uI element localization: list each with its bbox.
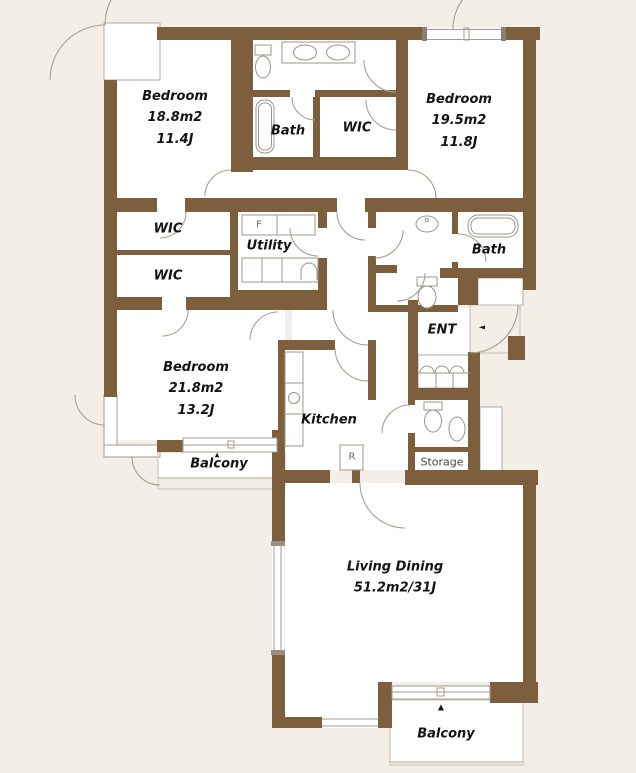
bedroom3-balcony-slider	[183, 438, 277, 452]
toilet2-icon	[417, 277, 437, 308]
bath2-label: Bath	[472, 239, 506, 260]
living-balcony-slider	[392, 686, 490, 699]
corridor2-floor	[292, 310, 410, 345]
balcony1-arrow-icon: ▲	[215, 452, 220, 459]
ent-label: ENT	[428, 319, 457, 340]
double-sink-vanity	[282, 42, 355, 63]
bedroom1-label: Bedroom 18.8m2 11.4J	[142, 86, 208, 150]
corner-window-vertical	[104, 395, 117, 452]
powder-sink-icon	[416, 216, 438, 232]
toilet3-icon	[424, 402, 442, 432]
bedroom2-label: Bedroom 19.5m2 11.8J	[426, 89, 492, 153]
floor-plan-drawing	[0, 0, 636, 773]
bedroom2-window-arc	[453, 0, 503, 29]
bedroom3-exterior-door-arc	[75, 395, 105, 425]
balcony2-label: Balcony	[417, 723, 475, 744]
wic-top-label: WIC	[343, 117, 372, 138]
wic2-label: WIC	[154, 265, 183, 286]
small-sink-icon	[449, 417, 465, 441]
kitchen-counter	[285, 352, 303, 446]
entry-alcove-floor	[104, 23, 160, 80]
wic1-label: WIC	[154, 218, 183, 239]
utility-label: Utility	[247, 235, 292, 256]
corner-window-horizontal	[104, 445, 160, 457]
laundry-mark: F	[256, 220, 262, 231]
balcony2-arrow-icon: ▲	[438, 703, 444, 712]
pipe-space-floor	[480, 407, 502, 477]
entry-closet-floor	[478, 278, 523, 305]
storage-label: Storage	[420, 456, 463, 469]
bath1-label: Bath	[271, 120, 305, 141]
alcove-door-arc-left	[50, 25, 105, 80]
kitchen-label: Kitchen	[301, 409, 357, 430]
living-bottom-window	[322, 717, 378, 728]
bedroom3-label: Bedroom 21.8m2 13.2J	[163, 357, 229, 421]
hall-floor	[327, 212, 368, 310]
floor-plan: Bedroom 18.8m2 11.4J Bath WIC Bedroom 19…	[0, 0, 636, 773]
living-label: Living Dining 51.2m2/31J	[347, 557, 443, 600]
bedroom2-top-window	[422, 27, 506, 41]
utility-counter	[242, 258, 318, 282]
entry-arrow-icon: ◄	[479, 323, 485, 332]
balcony-partition-arc	[132, 457, 160, 485]
alcove-door-arc-top	[105, 0, 160, 25]
living-left-window	[271, 541, 285, 655]
toilet-icon	[255, 45, 271, 78]
shoe-closet-floor	[418, 355, 470, 388]
bathtub2-icon	[468, 215, 518, 237]
fridge-mark: R	[349, 452, 356, 463]
laundry-counter	[242, 215, 315, 235]
corridor-floor	[231, 170, 408, 198]
